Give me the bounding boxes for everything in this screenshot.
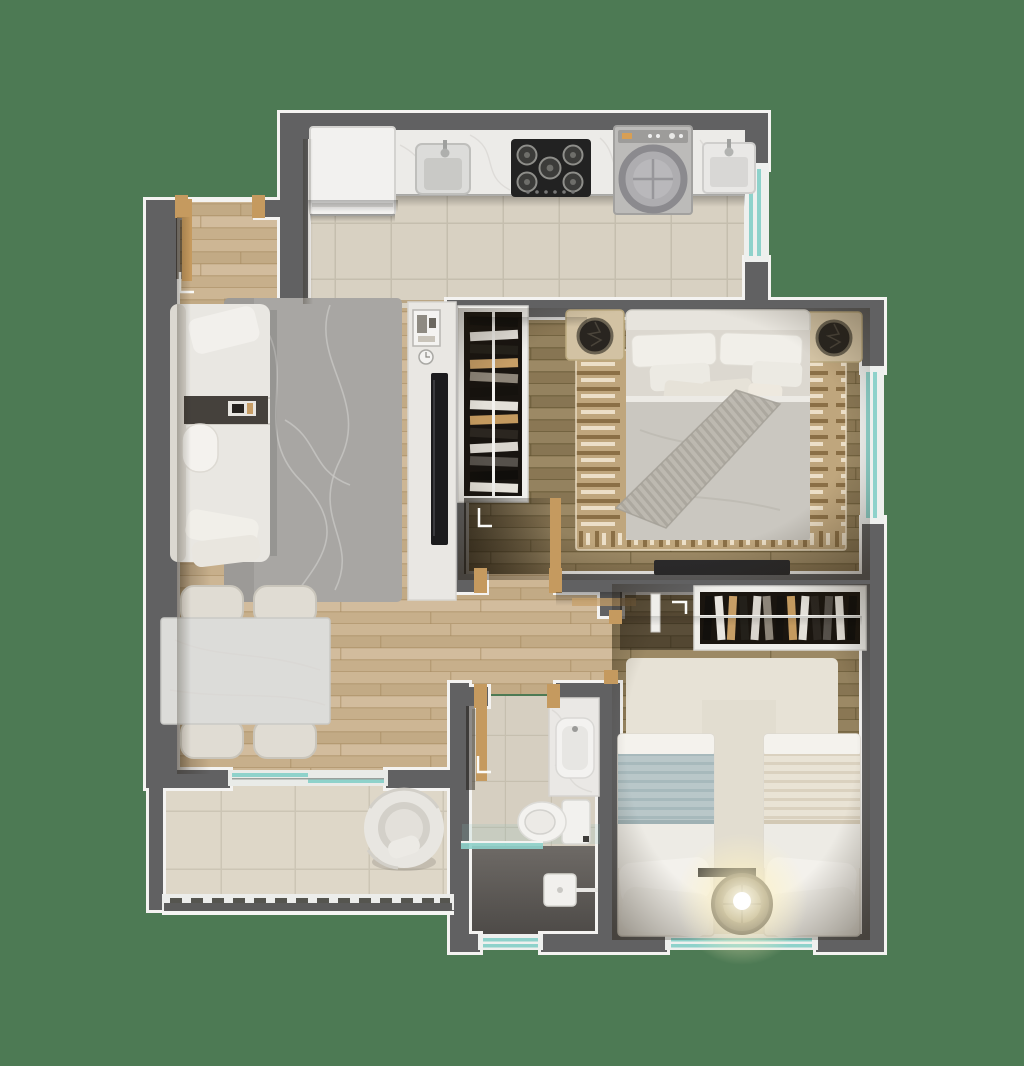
room-shading — [458, 308, 870, 580]
lamp-light — [733, 892, 751, 910]
glass-railing — [162, 894, 454, 915]
entry-threshold-wood — [186, 202, 256, 217]
door-shadow — [466, 706, 475, 790]
tv-console — [408, 302, 456, 600]
dining-chair — [254, 720, 316, 758]
floor-plan — [0, 0, 1024, 1066]
room-second-bedroom — [612, 584, 870, 965]
room-master-bedroom — [458, 306, 870, 580]
glass-partition — [461, 843, 543, 849]
master-door-leaf — [550, 498, 561, 572]
cooktop — [511, 139, 591, 197]
bathroom-window — [478, 934, 543, 950]
toilet — [518, 800, 590, 844]
door-jamb — [474, 568, 487, 593]
round-armchair — [364, 788, 444, 868]
kitchen-sink — [416, 140, 470, 194]
balcony-sliding-door — [228, 770, 388, 786]
faucet — [572, 726, 578, 732]
door-jamb — [547, 684, 560, 708]
tray-books — [228, 401, 256, 416]
laundry-sink — [703, 139, 755, 193]
door-jamb — [609, 610, 622, 624]
floor-plan-screenshot — [0, 0, 1024, 1066]
door-jamb — [474, 684, 487, 708]
door-jamb — [252, 195, 265, 218]
door-jamb — [604, 670, 618, 684]
shower-arm — [576, 888, 598, 892]
washing-machine — [614, 126, 692, 214]
door-leaf — [651, 594, 660, 632]
vanity-counter — [549, 698, 599, 796]
